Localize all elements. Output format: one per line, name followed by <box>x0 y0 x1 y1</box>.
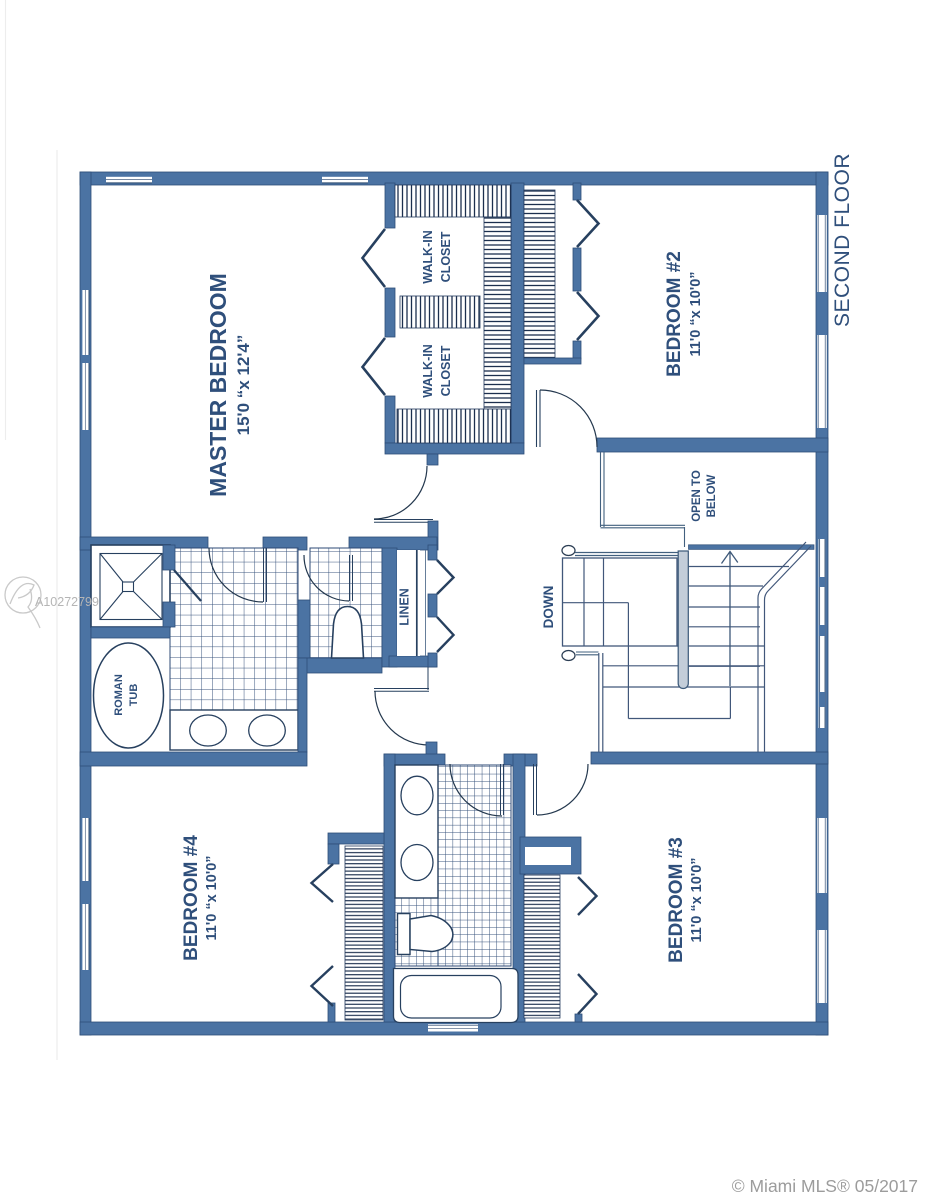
svg-text:MASTER BEDROOM: MASTER BEDROOM <box>205 273 231 497</box>
svg-text:CLOSET: CLOSET <box>439 231 453 282</box>
svg-text:CLOSET: CLOSET <box>439 345 453 396</box>
svg-text:ROMAN: ROMAN <box>113 674 125 716</box>
svg-text:© Miami MLS® 05/2017: © Miami MLS® 05/2017 <box>732 1176 918 1196</box>
svg-text:A10272799: A10272799 <box>35 595 99 609</box>
svg-text:SECOND FLOOR: SECOND FLOOR <box>831 153 854 327</box>
svg-text:LINEN: LINEN <box>398 588 412 626</box>
svg-text:15'0 “x 12'4”: 15'0 “x 12'4” <box>234 335 253 436</box>
svg-text:WALK-IN: WALK-IN <box>421 230 435 283</box>
svg-text:BELOW: BELOW <box>706 474 718 517</box>
svg-text:11'0 “x 10'0”: 11'0 “x 10'0” <box>689 857 705 942</box>
svg-text:DOWN: DOWN <box>541 586 556 629</box>
svg-text:11'0 “x 10'0”: 11'0 “x 10'0” <box>688 271 704 356</box>
svg-text:BEDROOM #2: BEDROOM #2 <box>664 251 685 377</box>
svg-text:11'0 “x 10'0”: 11'0 “x 10'0” <box>204 855 220 940</box>
svg-text:TUB: TUB <box>128 684 140 707</box>
svg-text:OPEN TO: OPEN TO <box>691 470 703 522</box>
svg-text:WALK-IN: WALK-IN <box>421 344 435 397</box>
svg-text:BEDROOM #4: BEDROOM #4 <box>181 835 202 961</box>
svg-text:BEDROOM #3: BEDROOM #3 <box>666 837 687 963</box>
